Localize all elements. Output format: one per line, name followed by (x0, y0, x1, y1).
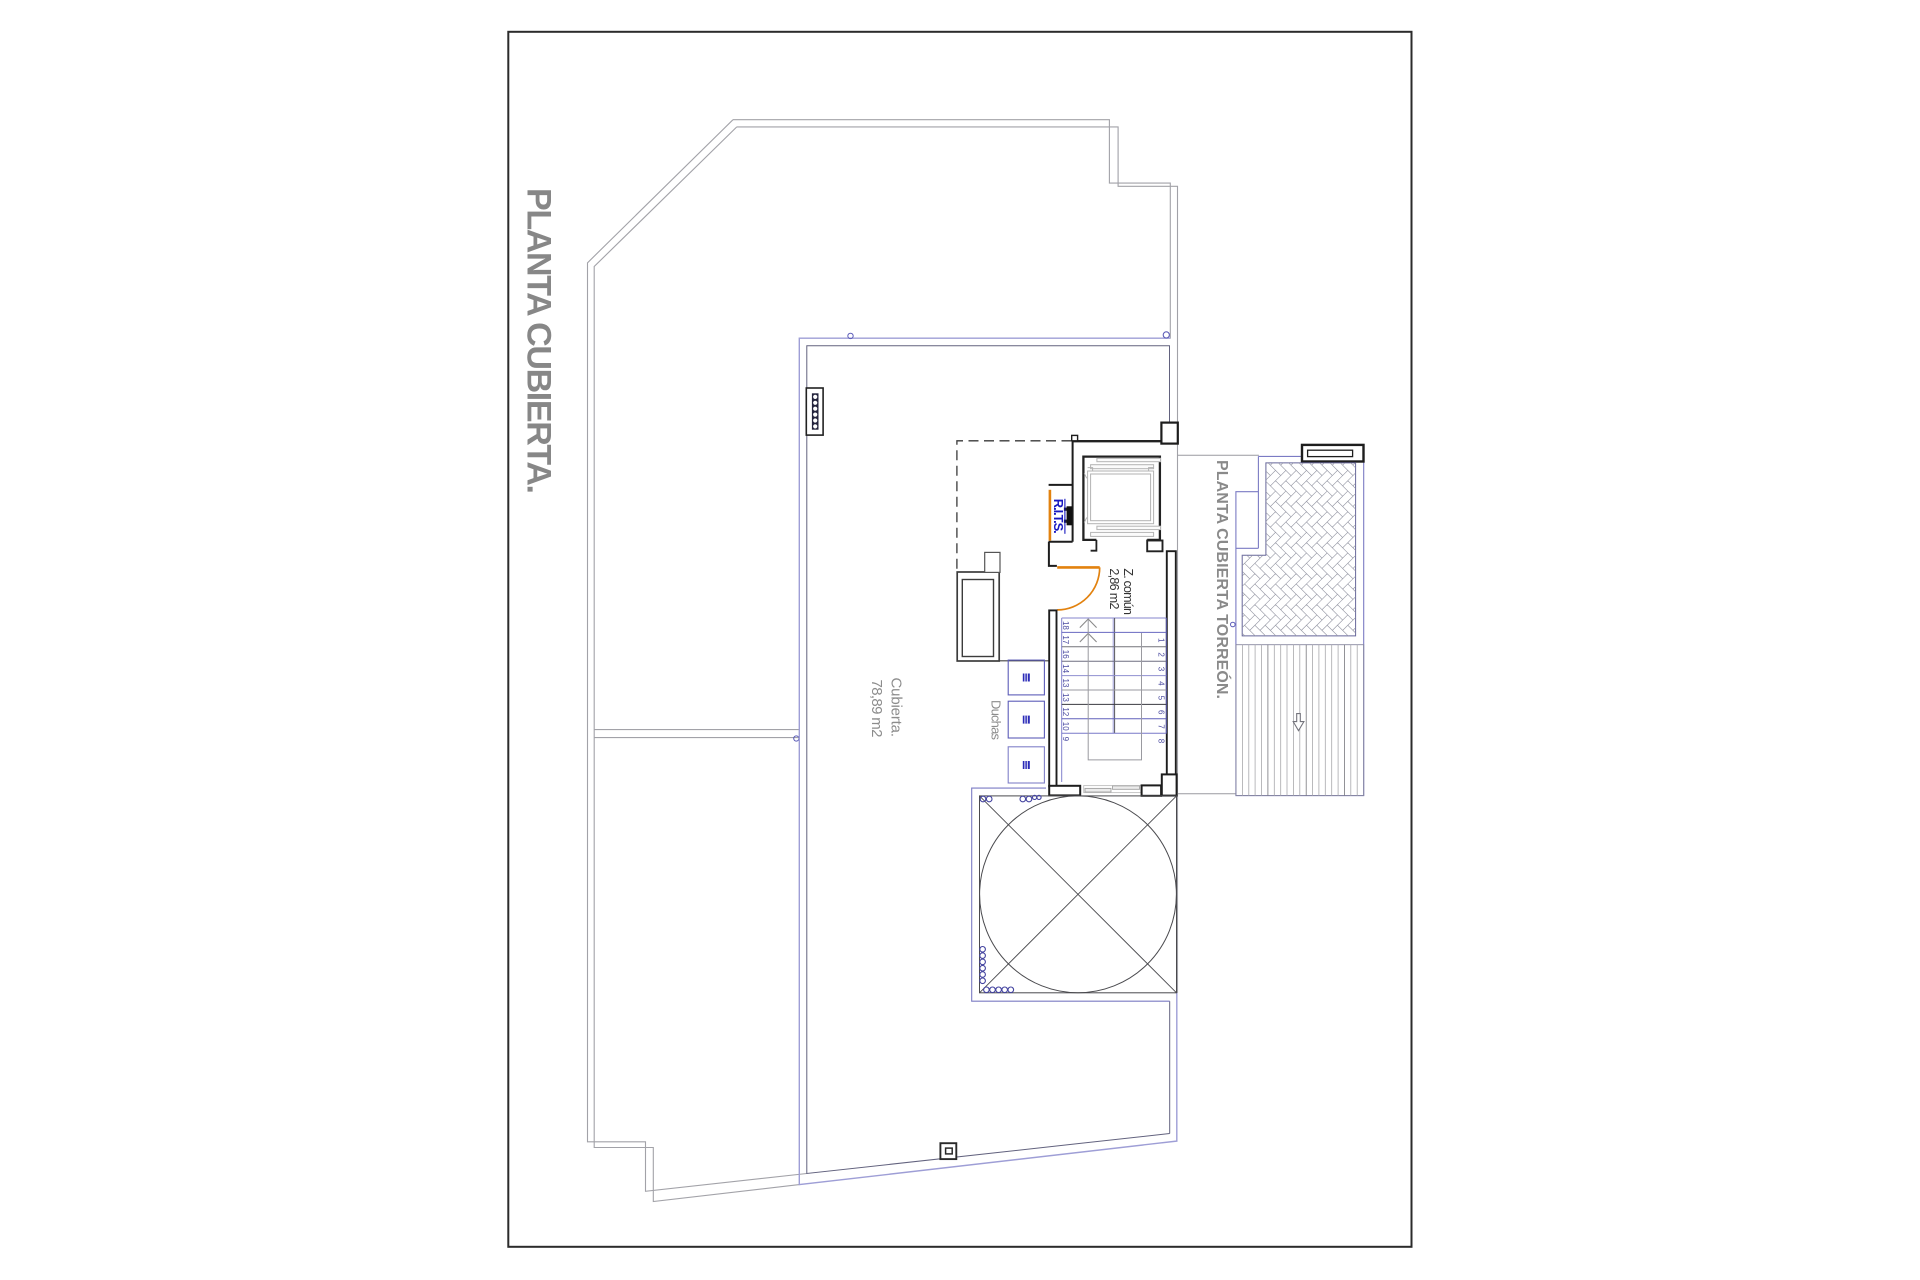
svg-text:18: 18 (1061, 621, 1070, 630)
svg-text:4: 4 (1157, 681, 1166, 686)
svg-text:PLANTA CUBIERTA TORREÓN.: PLANTA CUBIERTA TORREÓN. (1213, 460, 1232, 699)
svg-text:7: 7 (1157, 724, 1166, 729)
svg-text:14: 14 (1061, 664, 1070, 673)
svg-text:R.I.T.S.: R.I.T.S. (1051, 499, 1066, 534)
svg-text:16: 16 (1061, 650, 1070, 659)
svg-text:Duchas: Duchas (989, 700, 1004, 741)
svg-text:3: 3 (1157, 667, 1166, 672)
svg-text:PLANTA CUBIERTA.: PLANTA CUBIERTA. (520, 188, 558, 494)
svg-text:Z. común: Z. común (1121, 568, 1135, 615)
svg-text:13: 13 (1061, 679, 1070, 688)
svg-text:Cubierta.: Cubierta. (888, 678, 905, 738)
svg-text:10: 10 (1061, 722, 1070, 731)
svg-text:2: 2 (1157, 652, 1166, 657)
svg-text:12: 12 (1061, 707, 1070, 716)
svg-text:2,86 m2: 2,86 m2 (1107, 568, 1121, 609)
svg-text:78,89 m2: 78,89 m2 (868, 680, 885, 738)
svg-text:1: 1 (1157, 638, 1166, 643)
svg-text:9: 9 (1061, 737, 1070, 742)
svg-text:17: 17 (1061, 635, 1070, 644)
svg-text:5: 5 (1157, 696, 1166, 701)
svg-text:8: 8 (1157, 739, 1166, 744)
svg-text:13: 13 (1061, 693, 1070, 702)
svg-text:6: 6 (1157, 710, 1166, 715)
